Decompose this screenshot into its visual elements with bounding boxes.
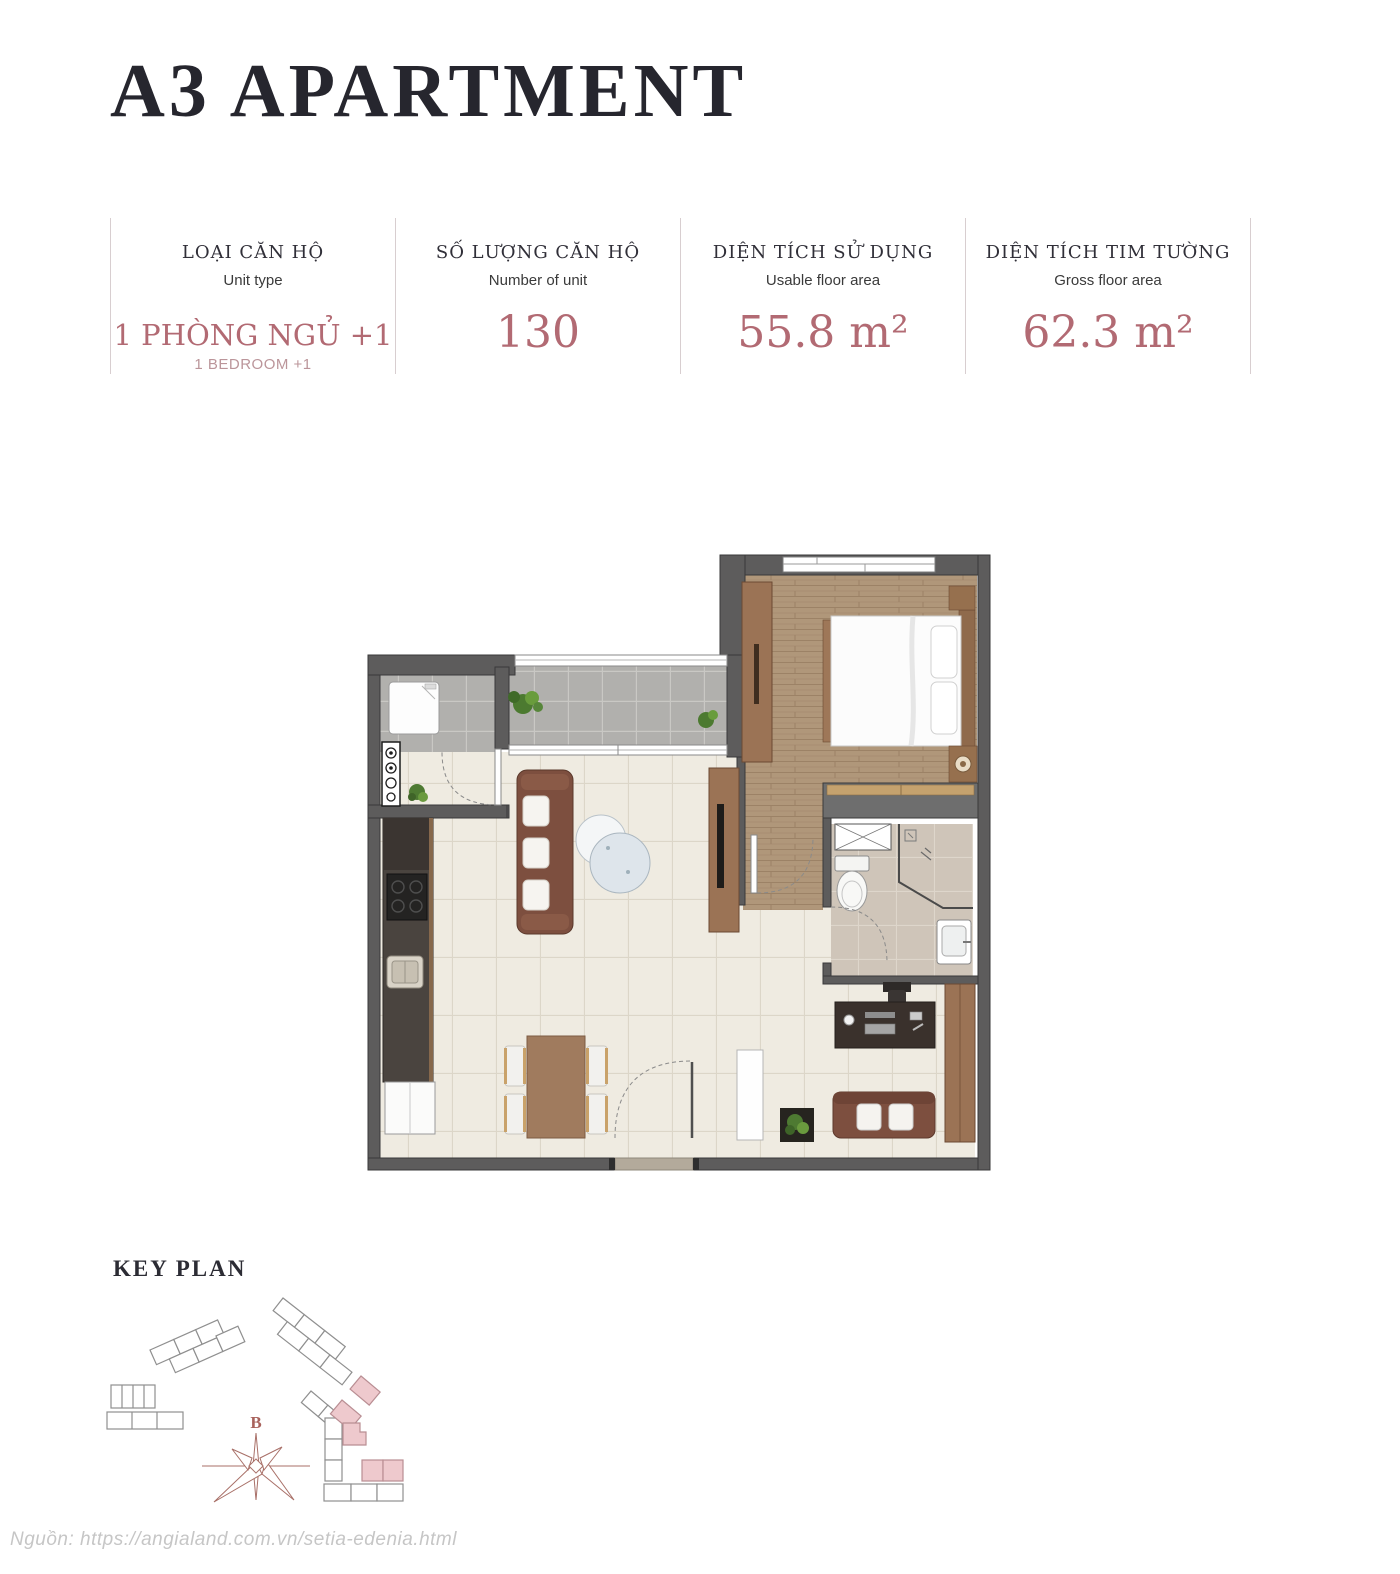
- brochure-page: A3 APARTMENT LOẠI CĂN HỘ Unit type 1 PHÒ…: [0, 0, 1400, 1574]
- sofa-cushion: [857, 1104, 881, 1130]
- compass: [202, 1433, 310, 1502]
- dining-chair: [504, 1046, 526, 1086]
- dining-chair: [504, 1094, 526, 1134]
- kitchen: [383, 818, 435, 1134]
- pillow: [931, 626, 957, 678]
- page-title: A3 APARTMENT: [110, 48, 747, 135]
- stat-label-en: Unit type: [111, 272, 395, 289]
- toilet-tank: [835, 856, 869, 871]
- sofa-cushion: [523, 880, 549, 910]
- dining-table: [527, 1036, 585, 1138]
- stat-label-vi: DIỆN TÍCH TIM TƯỜNG: [966, 242, 1250, 263]
- stat-label-vi: LOẠI CĂN HỘ: [111, 242, 395, 263]
- sofa-cushion: [889, 1104, 913, 1130]
- stat-value: 1 PHÒNG NGỦ +1: [111, 321, 395, 350]
- pillow: [931, 682, 957, 734]
- stat-value: 130: [396, 311, 680, 355]
- stat-value-sub: 1 BEDROOM +1: [111, 356, 395, 373]
- toilet: [837, 871, 867, 911]
- sofa-cushion: [523, 838, 549, 868]
- compass-north-label: B: [250, 1413, 261, 1432]
- stat-value: 55.8 m²: [681, 311, 965, 355]
- cooktop: [387, 874, 427, 920]
- dining-chair: [586, 1046, 608, 1086]
- plant: [780, 1108, 814, 1142]
- wall-cap: [609, 1158, 615, 1170]
- stat-label-en: Gross floor area: [966, 272, 1250, 289]
- stat-number-of-unit: SỐ LƯỢNG CĂN HỘ Number of unit 130: [395, 218, 680, 374]
- entry-console: [737, 1050, 763, 1140]
- stat-label-vi: DIỆN TÍCH SỬ DỤNG: [681, 242, 965, 263]
- coffee-table: [590, 833, 650, 893]
- source-note: Nguồn: https://angialand.com.vn/setia-ed…: [10, 1529, 457, 1551]
- bedroom-closet: [823, 783, 978, 818]
- bedroom-door-leaf: [751, 835, 757, 893]
- utility-door-leaf: [495, 749, 501, 805]
- dining-chair: [586, 1094, 608, 1134]
- stat-value: 62.3 m²: [966, 311, 1250, 355]
- key-plan-title: KEY PLAN: [113, 1256, 246, 1282]
- nightstand: [949, 586, 975, 610]
- shower-tray: [389, 682, 439, 734]
- stat-unit-type: LOẠI CĂN HỘ Unit type 1 PHÒNG NGỦ +1 1 B…: [110, 218, 395, 374]
- stat-label-en: Usable floor area: [681, 272, 965, 289]
- tv: [717, 804, 724, 888]
- stats-band: LOẠI CĂN HỘ Unit type 1 PHÒNG NGỦ +1 1 B…: [110, 218, 1251, 374]
- stat-usable-area: DIỆN TÍCH SỬ DỤNG Usable floor area 55.8…: [680, 218, 965, 374]
- key-plan-map: B: [80, 1288, 500, 1523]
- stat-label-en: Number of unit: [396, 272, 680, 289]
- floor-plan-image: [365, 552, 995, 1172]
- sofa-cushion: [523, 796, 549, 826]
- stat-label-vi: SỐ LƯỢNG CĂN HỘ: [396, 242, 680, 263]
- wall-cap: [693, 1158, 699, 1170]
- stat-gross-area: DIỆN TÍCH TIM TƯỜNG Gross floor area 62.…: [965, 218, 1250, 374]
- entry-threshold: [615, 1158, 693, 1170]
